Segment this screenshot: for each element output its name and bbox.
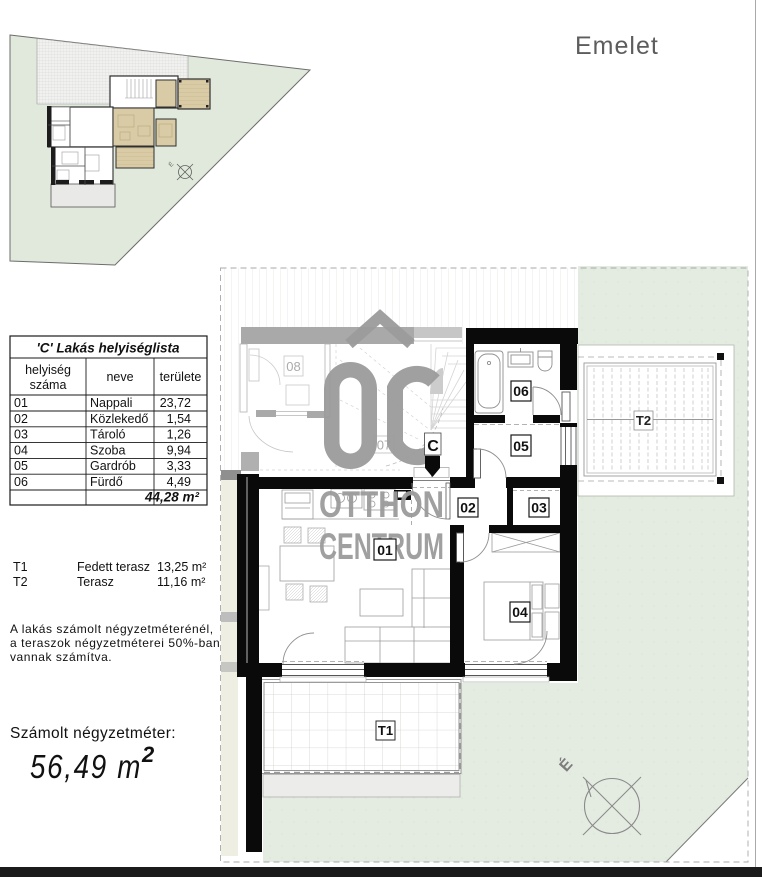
svg-text:T2: T2 bbox=[13, 575, 28, 589]
svg-text:01: 01 bbox=[377, 542, 393, 558]
svg-text:08: 08 bbox=[286, 359, 300, 374]
svg-text:területe: területe bbox=[160, 370, 202, 384]
svg-text:helyiség: helyiség bbox=[25, 363, 71, 377]
svg-text:C: C bbox=[427, 438, 439, 455]
svg-text:Szoba: Szoba bbox=[90, 444, 125, 458]
svg-text:Terasz: Terasz bbox=[77, 575, 114, 589]
svg-text:05: 05 bbox=[513, 438, 529, 454]
svg-text:56,49 m: 56,49 m bbox=[30, 748, 142, 785]
svg-text:neve: neve bbox=[106, 370, 133, 384]
svg-text:03: 03 bbox=[14, 428, 28, 442]
svg-text:T1: T1 bbox=[378, 723, 393, 738]
svg-text:Fedett terasz: Fedett terasz bbox=[77, 560, 150, 574]
svg-text:2: 2 bbox=[141, 742, 155, 767]
svg-text:Nappali: Nappali bbox=[90, 396, 132, 410]
svg-text:Tároló: Tároló bbox=[90, 428, 125, 442]
svg-text:T1: T1 bbox=[13, 560, 28, 574]
svg-text:02: 02 bbox=[460, 500, 476, 516]
svg-text:03: 03 bbox=[531, 500, 547, 516]
svg-text:T2: T2 bbox=[636, 413, 651, 428]
svg-text:vannak számítva.: vannak számítva. bbox=[10, 650, 112, 664]
svg-text:3,33: 3,33 bbox=[167, 459, 191, 473]
svg-text:a teraszok négyzetméterei 50%-: a teraszok négyzetméterei 50%-ban bbox=[10, 636, 220, 650]
svg-text:OTTHON: OTTHON bbox=[319, 484, 444, 525]
svg-text:1,54: 1,54 bbox=[167, 412, 191, 426]
svg-text:02: 02 bbox=[14, 412, 28, 426]
svg-text:4,49: 4,49 bbox=[167, 475, 191, 489]
svg-text:1,26: 1,26 bbox=[167, 428, 191, 442]
svg-text:05: 05 bbox=[14, 459, 28, 473]
svg-text:Gardrób: Gardrób bbox=[90, 459, 136, 473]
svg-text:13,25 m²: 13,25 m² bbox=[157, 560, 206, 574]
svg-text:04: 04 bbox=[14, 444, 28, 458]
svg-text:01: 01 bbox=[14, 396, 28, 410]
svg-text:Fürdő: Fürdő bbox=[90, 475, 123, 489]
svg-text:11,16 m²: 11,16 m² bbox=[157, 575, 205, 589]
svg-text:23,72: 23,72 bbox=[160, 396, 191, 410]
svg-text:06: 06 bbox=[14, 475, 28, 489]
svg-text:9,94: 9,94 bbox=[167, 444, 191, 458]
svg-text:A lakás számolt négyzetméterén: A lakás számolt négyzetméterénél, bbox=[10, 622, 214, 636]
svg-text:04: 04 bbox=[512, 604, 528, 620]
svg-text:'C' Lakás helyiséglista: 'C' Lakás helyiséglista bbox=[37, 341, 180, 356]
svg-text:Számolt négyzetméter:: Számolt négyzetméter: bbox=[10, 725, 176, 742]
svg-text:Emelet: Emelet bbox=[575, 32, 659, 60]
svg-text:44,28 m²: 44,28 m² bbox=[144, 490, 200, 505]
svg-text:Közlekedő: Közlekedő bbox=[90, 412, 148, 426]
svg-text:06: 06 bbox=[513, 383, 529, 399]
svg-text:száma: száma bbox=[30, 378, 67, 392]
